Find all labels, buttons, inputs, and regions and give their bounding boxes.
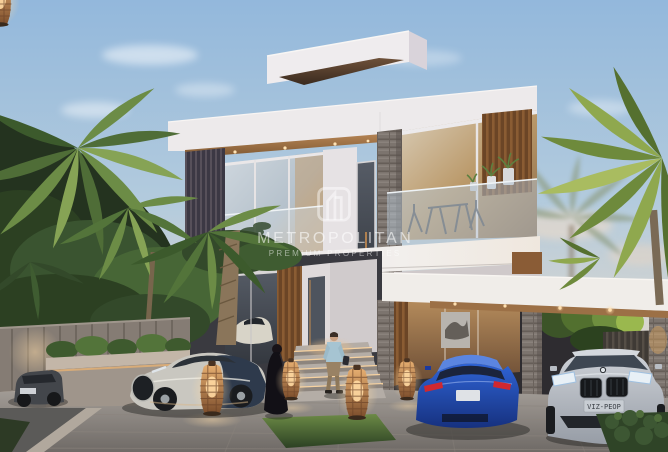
bmw-roundel [600, 367, 605, 372]
license-plate [20, 388, 36, 394]
rendered-scene: VIZ-PEOP [0, 0, 668, 452]
front-grille [132, 375, 154, 401]
white-pier [323, 147, 357, 262]
dark-hatchback [14, 370, 64, 407]
license-plate: VIZ-PEOP [584, 400, 624, 412]
villa-photo: VIZ-PEOP [0, 0, 668, 452]
license-plate [456, 390, 480, 401]
side-mirror [550, 366, 557, 371]
wall-art [441, 312, 470, 348]
svg-text:VIZ-PEOP: VIZ-PEOP [587, 403, 621, 411]
side-mirror [425, 366, 431, 370]
side-mirror [655, 364, 662, 369]
